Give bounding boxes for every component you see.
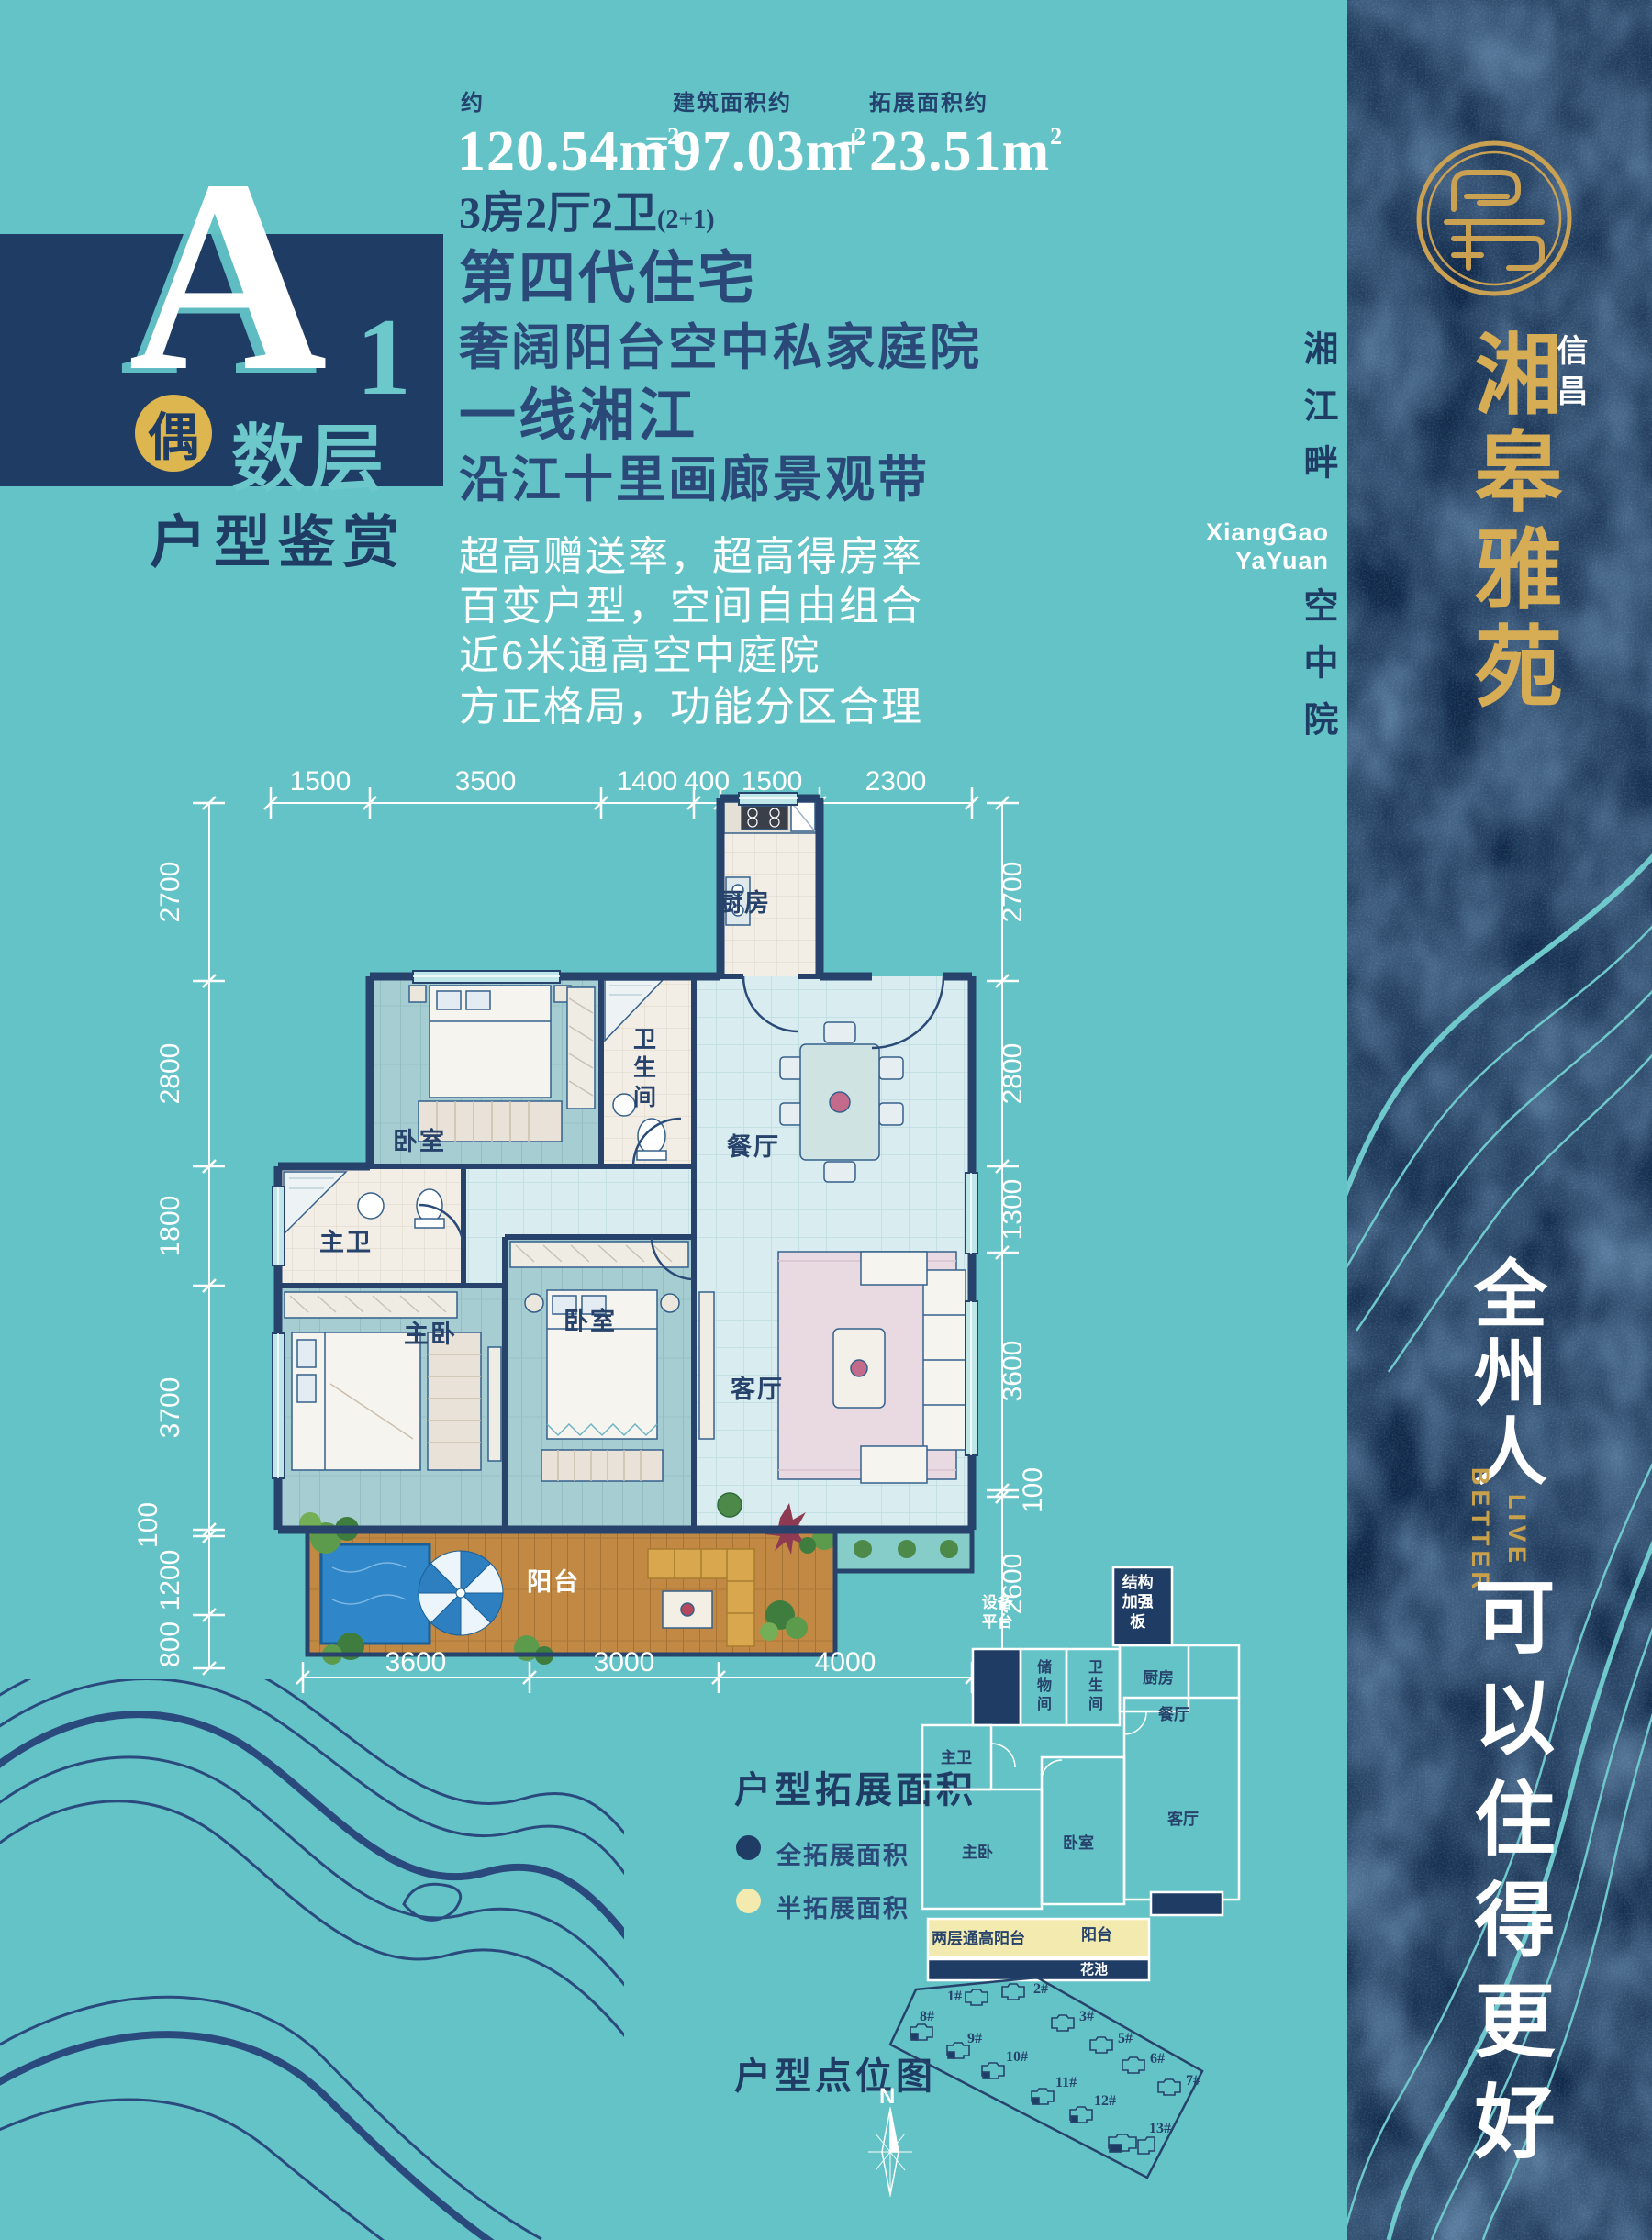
contour-decoration-left bbox=[0, 1679, 624, 2240]
room-label-dining: 餐厅 bbox=[727, 1127, 780, 1163]
mini-label-mini-bathroom: 卫生间 bbox=[1088, 1659, 1105, 1714]
side-tagline-1: 湘江畔 bbox=[1292, 330, 1343, 532]
dim-bottom-2: 3000 bbox=[574, 1647, 675, 1678]
site-plan: 1# 2# 3# 5# 6# 7# 8# 9# 10# 11# 12# 13# … bbox=[863, 1964, 1377, 2239]
romanized-name: XiangGao YaYuan bbox=[1193, 518, 1329, 575]
slogan-cn-bottom: 可以住得更好 bbox=[1448, 1575, 1565, 2217]
romanized-line2: YaYuan bbox=[1193, 547, 1329, 575]
building-label-7: 7# bbox=[1186, 2073, 1200, 2089]
expand-area-value: 23.51m2 bbox=[869, 108, 1063, 180]
site-buildings bbox=[910, 1984, 1180, 2154]
feature-4: 方正格局，功能分区合理 bbox=[459, 674, 923, 732]
dim-left-1: 2700 bbox=[155, 841, 186, 942]
legend-full-dot bbox=[736, 1835, 761, 1860]
even-floor-badge: 偶 bbox=[135, 395, 212, 472]
unit-letter: A bbox=[128, 138, 328, 413]
room-label-kitchen: 厨房 bbox=[718, 883, 771, 919]
dim-left-2: 2800 bbox=[155, 1023, 186, 1124]
mini-label-mini-kitchen: 厨房 bbox=[1143, 1668, 1174, 1688]
mini-label-mini-master-bedroom: 主卧 bbox=[962, 1843, 993, 1862]
building-label-2: 2# bbox=[1033, 1981, 1048, 1997]
building-label-12: 12# bbox=[1094, 2093, 1116, 2109]
brand-name: 湘皋雅苑 bbox=[1446, 329, 1574, 751]
building-label-11: 11# bbox=[1055, 2075, 1077, 2090]
brand-logo-icon bbox=[1413, 138, 1575, 299]
headline-1: 第四代住宅 bbox=[459, 231, 757, 314]
building-label-8: 8# bbox=[920, 2009, 934, 2024]
mini-label-structure: 结构加强板 bbox=[1121, 1573, 1155, 1632]
dim-right-1: 2700 bbox=[998, 841, 1029, 942]
room-label-bedroom2: 卧室 bbox=[564, 1301, 617, 1337]
building-label-10: 10# bbox=[1006, 2049, 1028, 2065]
side-tagline-2: 空中院 bbox=[1292, 587, 1343, 826]
mini-label-mini-balcony: 阳台 bbox=[1081, 1925, 1112, 1945]
plus-sign: + bbox=[841, 116, 865, 173]
romanized-line1: XiangGao bbox=[1193, 518, 1329, 547]
floors-text: 数层 bbox=[231, 400, 389, 507]
brand-panel: 信昌 湘皋雅苑 全州人 LIVE BETTER 可以住得更好 bbox=[1347, 0, 1652, 2240]
unit-subtitle: 户型鉴赏 bbox=[150, 496, 407, 578]
room-label-balcony: 阳台 bbox=[527, 1562, 580, 1598]
dim-right-3: 1300 bbox=[998, 1159, 1029, 1260]
dim-left-3: 1800 bbox=[155, 1176, 186, 1276]
mini-label-mini-master-bath: 主卫 bbox=[941, 1748, 972, 1767]
mini-label-equipment: 设备平台 bbox=[980, 1593, 1014, 1633]
room-label-bedroom1: 卧室 bbox=[393, 1121, 446, 1157]
dim-left-4: 3700 bbox=[155, 1357, 186, 1458]
mini-label-double-balcony: 两层通高阳台 bbox=[932, 1929, 1025, 1948]
building-label-5: 5# bbox=[1118, 2031, 1133, 2046]
mini-label-storage: 储物间 bbox=[1037, 1659, 1054, 1714]
compass-icon: N bbox=[868, 2084, 912, 2197]
dim-left-7: 800 bbox=[155, 1594, 186, 1695]
building-label-9: 9# bbox=[967, 2031, 982, 2046]
legend-half-dot bbox=[736, 1889, 761, 1913]
dim-top-5: 1500 bbox=[721, 766, 822, 797]
dim-right-2: 2800 bbox=[998, 1023, 1029, 1124]
poster-root: 约 120.54m2 = 建筑面积约 97.03m2 + 拓展面积约 23.51… bbox=[0, 0, 1652, 2240]
dim-top-2: 3500 bbox=[435, 766, 536, 797]
headline-4: 沿江十里画廊景观带 bbox=[459, 439, 930, 511]
dim-top-1: 1500 bbox=[270, 766, 371, 797]
mini-label-mini-dining: 餐厅 bbox=[1158, 1705, 1189, 1724]
building-label-1: 1# bbox=[947, 1989, 962, 2004]
building-label-13: 13# bbox=[1149, 2121, 1171, 2136]
building-label-3: 3# bbox=[1079, 2009, 1094, 2024]
building-label-6: 6# bbox=[1150, 2051, 1165, 2067]
mini-label-mini-bedroom: 卧室 bbox=[1063, 1833, 1094, 1853]
dim-right-4: 3600 bbox=[998, 1321, 1029, 1421]
mini-label-mini-living: 客厅 bbox=[1167, 1810, 1199, 1829]
legend-full-label: 全拓展面积 bbox=[776, 1835, 910, 1871]
dim-bottom-3: 4000 bbox=[795, 1647, 896, 1678]
room-label-living: 客厅 bbox=[731, 1369, 784, 1405]
slogan-cn-top: 全州人 bbox=[1450, 1255, 1557, 1494]
dim-right-5: 100 bbox=[1018, 1440, 1049, 1541]
room-label-master-bath: 主卫 bbox=[319, 1222, 373, 1258]
room-label-bathroom: 卫生间 bbox=[633, 1026, 659, 1112]
built-area-value: 97.03m2 bbox=[673, 108, 866, 180]
feature-3: 近6米通高空中庭院 bbox=[459, 622, 820, 681]
dim-bottom-1: 3600 bbox=[365, 1647, 466, 1678]
equals-sign: = bbox=[644, 116, 669, 173]
legend-half-label: 半拓展面积 bbox=[776, 1889, 910, 1924]
svg-text:N: N bbox=[879, 2084, 895, 2109]
dim-top-6: 2300 bbox=[845, 766, 946, 797]
room-label-master-bedroom: 主卧 bbox=[404, 1314, 457, 1350]
